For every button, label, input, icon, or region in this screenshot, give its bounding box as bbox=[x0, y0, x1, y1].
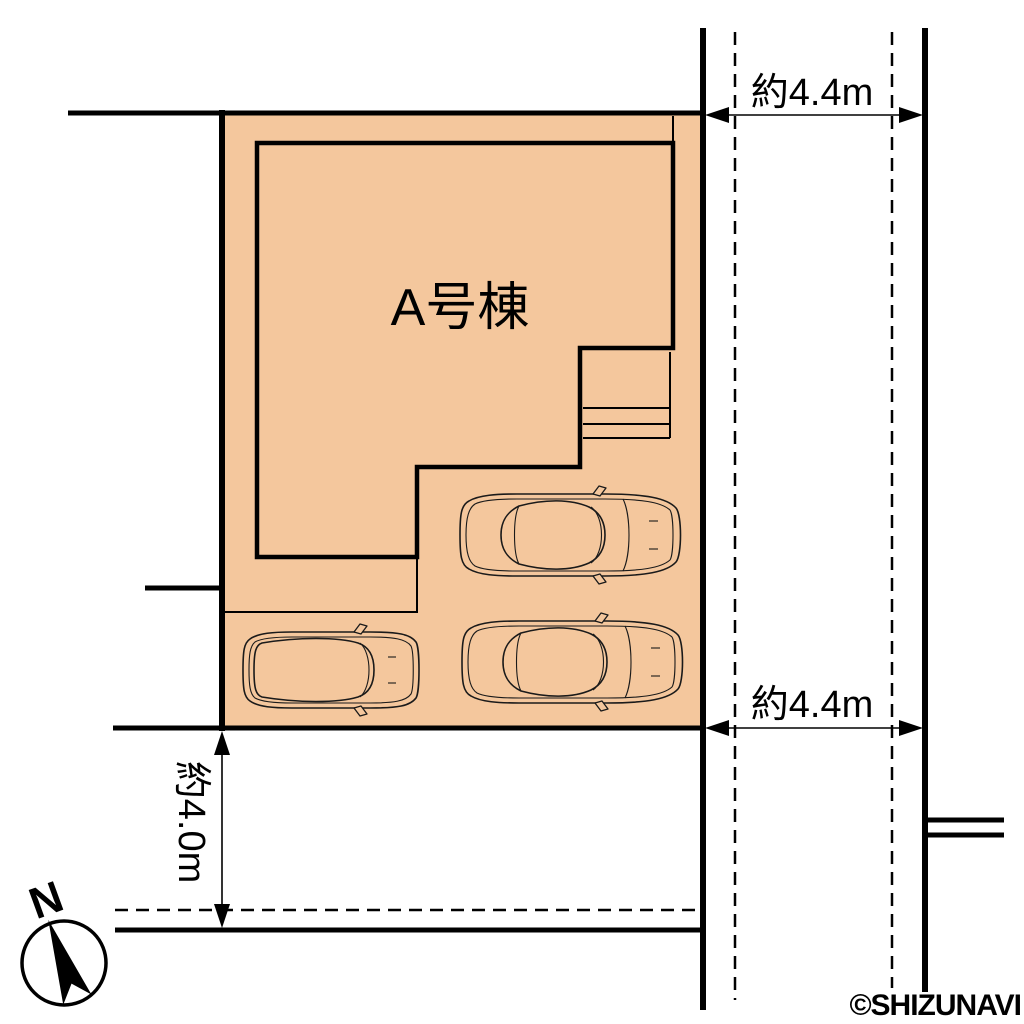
lot-area bbox=[222, 113, 703, 728]
watermark: ©SHIZUNAVI bbox=[849, 989, 1021, 1022]
site-plan-page: 約4.4m 約4.4m 約4.0m A号棟 N ©SHIZUNAVI bbox=[0, 0, 1024, 1024]
building-label: A号棟 bbox=[391, 279, 530, 337]
dimension-label-south: 約4.0m bbox=[170, 761, 212, 883]
arrowhead-left bbox=[705, 720, 729, 736]
compass-label: N bbox=[23, 872, 70, 929]
arrowhead-right bbox=[899, 107, 923, 123]
site-plan-svg: 約4.4m 約4.4m 約4.0m A号棟 N ©SHIZUNAVI bbox=[0, 0, 1024, 1024]
dimension-south: 約4.0m bbox=[170, 731, 230, 928]
dimension-east-bottom: 約4.4m bbox=[705, 684, 923, 736]
dimension-east-top: 約4.4m bbox=[705, 72, 923, 123]
east-branch-road bbox=[925, 820, 1004, 835]
north-compass-icon: N bbox=[22, 872, 106, 1005]
arrowhead-down bbox=[214, 904, 230, 928]
arrowhead-left bbox=[705, 107, 729, 123]
arrowhead-up bbox=[214, 731, 230, 755]
arrowhead-right bbox=[899, 720, 923, 736]
dimension-label-east-bottom: 約4.4m bbox=[751, 684, 873, 726]
dimension-label-east-top: 約4.4m bbox=[751, 72, 873, 114]
